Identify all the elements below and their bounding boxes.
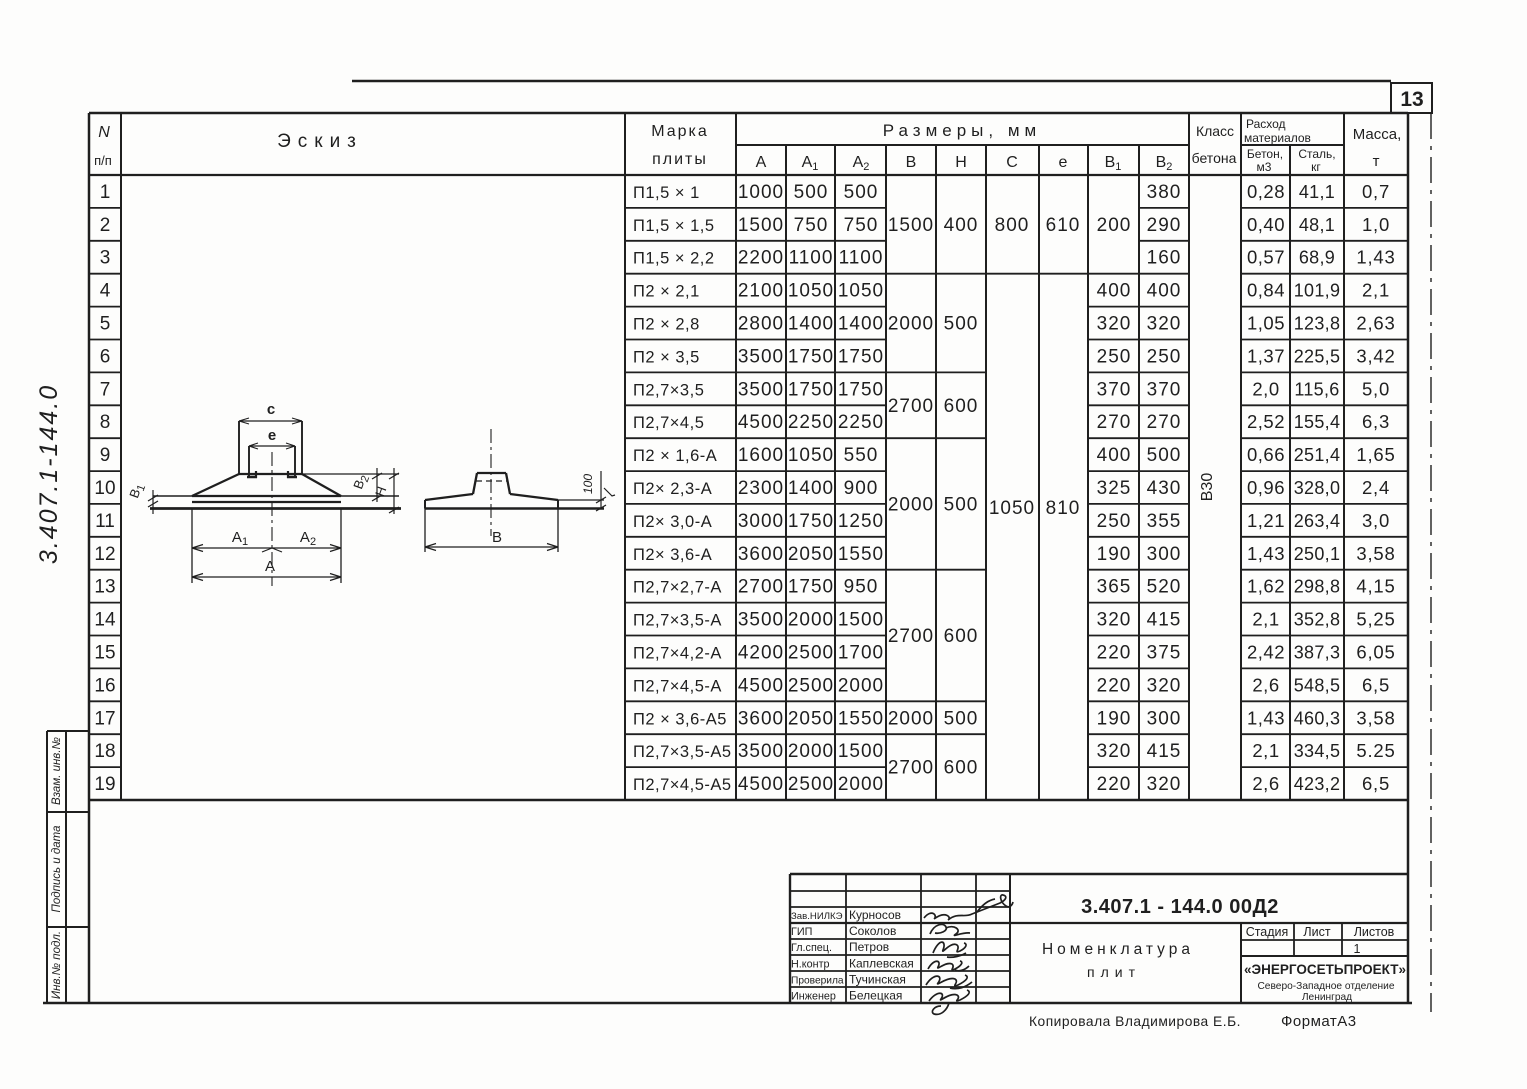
svg-text:П1,5 × 1: П1,5 × 1 [633,184,700,202]
svg-text:3600: 3600 [738,708,784,729]
svg-text:В2: В2 [1156,154,1173,173]
svg-text:Бетон,: Бетон, [1247,147,1283,161]
svg-text:160: 160 [1147,248,1182,269]
svg-text:4200: 4200 [738,643,784,664]
svg-text:Взам. инв.№: Взам. инв.№ [51,736,63,804]
svg-text:400: 400 [944,215,979,236]
svg-text:13: 13 [94,577,115,598]
svg-text:900: 900 [844,478,879,499]
svg-text:2250: 2250 [788,412,834,433]
svg-text:460,3: 460,3 [1294,708,1341,728]
svg-text:П2,7×4,5-А5: П2,7×4,5-А5 [633,776,732,794]
svg-text:520: 520 [1147,577,1182,598]
svg-text:Подпись и дата: Подпись и дата [51,826,63,913]
svg-text:2700: 2700 [888,626,934,647]
svg-text:П2 × 3,5: П2 × 3,5 [633,348,700,366]
svg-text:415: 415 [1147,610,1182,631]
svg-text:4,15: 4,15 [1356,576,1395,597]
svg-text:П2,7×3,5-А5: П2,7×3,5-А5 [633,743,732,761]
svg-text:П2 × 1,6-А: П2 × 1,6-А [633,447,717,465]
svg-text:Масса,: Масса, [1353,126,1402,143]
svg-text:17: 17 [94,708,115,729]
svg-text:плит: плит [1087,964,1141,980]
svg-text:Инв.№ подл.: Инв.№ подл. [51,931,63,999]
svg-text:1,43: 1,43 [1356,247,1395,268]
svg-text:Н: Н [955,154,967,171]
svg-text:2,63: 2,63 [1356,313,1395,334]
svg-text:2500: 2500 [788,643,834,664]
svg-text:0,57: 0,57 [1247,247,1285,268]
svg-text:Белецкая: Белецкая [849,989,902,1003]
svg-text:Курносов: Курносов [849,908,901,922]
svg-text:1,43: 1,43 [1247,543,1285,564]
svg-text:А: А [265,558,275,575]
svg-text:16: 16 [94,675,115,696]
svg-text:100: 100 [581,474,595,494]
svg-text:Ленинград: Ленинград [1302,992,1352,1003]
svg-text:415: 415 [1147,741,1182,762]
svg-text:423,2: 423,2 [1294,774,1341,794]
svg-text:А2: А2 [300,529,316,548]
svg-text:ФорматА3: ФорматА3 [1281,1013,1357,1030]
svg-text:П2 × 2,1: П2 × 2,1 [633,283,700,301]
svg-text:П2 × 2,8: П2 × 2,8 [633,316,700,334]
svg-text:кг: кг [1311,160,1321,174]
svg-text:220: 220 [1097,675,1132,696]
svg-text:600: 600 [944,626,979,647]
svg-text:370: 370 [1097,379,1132,400]
svg-text:380: 380 [1147,182,1182,203]
svg-text:3,42: 3,42 [1356,345,1395,366]
svg-text:2000: 2000 [838,675,884,696]
svg-text:1,05: 1,05 [1247,313,1285,334]
svg-text:320: 320 [1097,314,1132,335]
svg-text:370: 370 [1147,379,1182,400]
svg-text:Расход: Расход [1246,117,1286,131]
svg-text:3500: 3500 [738,346,784,367]
svg-text:352,8: 352,8 [1294,610,1341,630]
svg-text:13: 13 [1400,88,1423,111]
svg-text:300: 300 [1147,708,1182,729]
svg-text:Копировала Владимирова Е.Б.: Копировала Владимирова Е.Б. [1029,1014,1241,1029]
svg-text:3,0: 3,0 [1362,510,1390,531]
svg-text:1050: 1050 [788,445,834,466]
svg-text:325: 325 [1097,478,1132,499]
svg-text:5: 5 [100,314,111,335]
svg-text:19: 19 [94,774,115,795]
svg-text:225,5: 225,5 [1294,346,1341,366]
svg-text:320: 320 [1147,774,1182,795]
svg-text:500: 500 [944,314,979,335]
svg-text:270: 270 [1097,412,1132,433]
svg-text:220: 220 [1097,643,1132,664]
svg-text:1,0: 1,0 [1362,214,1390,235]
svg-text:0,96: 0,96 [1247,477,1285,498]
svg-text:Инженер: Инженер [791,991,836,1003]
svg-text:материалов: материалов [1244,131,1311,145]
svg-text:250: 250 [1147,346,1182,367]
svg-text:2050: 2050 [788,708,834,729]
svg-text:18: 18 [94,741,115,762]
svg-text:Класс: Класс [1196,123,1234,139]
svg-text:250: 250 [1097,346,1132,367]
svg-text:Зав.НИЛКЭ: Зав.НИЛКЭ [791,911,843,922]
svg-text:1: 1 [1354,942,1361,956]
svg-text:6,05: 6,05 [1356,642,1395,663]
svg-text:251,4: 251,4 [1294,445,1341,465]
svg-text:300: 300 [1147,544,1182,565]
svg-text:400: 400 [1097,445,1132,466]
svg-text:4500: 4500 [738,774,784,795]
svg-text:1,43: 1,43 [1247,707,1285,728]
svg-text:3500: 3500 [738,379,784,400]
svg-text:2: 2 [100,215,111,236]
svg-text:3,58: 3,58 [1356,707,1395,728]
svg-text:1700: 1700 [838,643,884,664]
svg-text:500: 500 [844,182,879,203]
svg-text:1050: 1050 [989,498,1035,519]
svg-text:400: 400 [1147,281,1182,302]
svg-text:6: 6 [100,346,111,367]
svg-text:2,42: 2,42 [1247,642,1285,663]
svg-text:1100: 1100 [839,248,884,269]
svg-text:Н.контр: Н.контр [791,958,830,970]
svg-text:А2: А2 [853,154,870,173]
svg-text:П2,7×4,5-А: П2,7×4,5-А [633,677,722,695]
svg-text:2,1: 2,1 [1252,740,1279,761]
svg-text:1750: 1750 [838,346,884,367]
svg-text:263,4: 263,4 [1294,511,1341,531]
svg-text:1500: 1500 [838,610,884,631]
svg-text:250,1: 250,1 [1294,544,1341,564]
svg-text:Петров: Петров [849,940,889,954]
svg-text:0,28: 0,28 [1247,181,1285,202]
svg-text:328,0: 328,0 [1294,478,1341,498]
svg-text:500: 500 [944,708,979,729]
svg-text:3000: 3000 [738,511,784,532]
svg-text:1,62: 1,62 [1247,576,1285,597]
svg-text:2,4: 2,4 [1362,477,1390,498]
svg-text:2,1: 2,1 [1362,280,1390,301]
svg-text:Номенклатура: Номенклатура [1042,941,1194,958]
svg-text:15: 15 [94,643,115,664]
svg-text:48,1: 48,1 [1299,215,1335,235]
svg-text:320: 320 [1147,675,1182,696]
svg-text:155,4: 155,4 [1294,412,1341,432]
svg-text:6,5: 6,5 [1362,674,1390,695]
svg-text:П2,7×4,5: П2,7×4,5 [633,414,704,432]
svg-text:9: 9 [100,445,111,466]
svg-text:500: 500 [944,494,979,515]
svg-text:220: 220 [1097,774,1132,795]
svg-text:500: 500 [1147,445,1182,466]
svg-text:П1,5 × 2,2: П1,5 × 2,2 [633,250,715,268]
svg-text:В1: В1 [126,481,148,501]
svg-text:С: С [1006,154,1018,171]
svg-text:П2,7×3,5-А: П2,7×3,5-А [633,612,722,630]
svg-text:3.407.1-144.0: 3.407.1-144.0 [35,384,63,564]
svg-text:750: 750 [794,215,829,236]
svg-text:7: 7 [100,379,111,400]
svg-text:550: 550 [844,445,879,466]
svg-text:320: 320 [1147,314,1182,335]
svg-text:6,3: 6,3 [1362,411,1390,432]
svg-text:Эскиз: Эскиз [277,131,363,152]
svg-text:м3: м3 [1257,160,1272,174]
svg-text:А1: А1 [802,154,819,173]
svg-text:0,66: 0,66 [1247,444,1285,465]
svg-text:123,8: 123,8 [1294,314,1341,334]
svg-text:190: 190 [1097,544,1132,565]
svg-text:П2,7×2,7-А: П2,7×2,7-А [633,579,722,597]
svg-text:2200: 2200 [738,248,784,269]
svg-text:П2 × 3,6-А5: П2 × 3,6-А5 [633,710,727,728]
svg-text:1600: 1600 [738,445,784,466]
svg-text:П2× 3,0-А: П2× 3,0-А [633,513,712,531]
svg-text:2700: 2700 [738,577,784,598]
svg-text:548,5: 548,5 [1294,675,1341,695]
svg-text:1750: 1750 [838,379,884,400]
svg-text:2000: 2000 [888,494,934,515]
svg-text:П2,7×3,5: П2,7×3,5 [633,381,704,399]
svg-text:1400: 1400 [788,314,834,335]
svg-text:2000: 2000 [788,741,834,762]
svg-text:600: 600 [944,758,979,779]
svg-text:950: 950 [844,577,879,598]
svg-text:Лист: Лист [1303,925,1330,939]
svg-text:2000: 2000 [888,314,934,335]
svg-text:П2× 2,3-А: П2× 2,3-А [633,480,712,498]
svg-text:0,40: 0,40 [1247,214,1285,235]
svg-text:3.407.1 - 144.0 00Д2: 3.407.1 - 144.0 00Д2 [1081,896,1279,918]
svg-text:5,25: 5,25 [1356,609,1395,630]
svg-text:2,1: 2,1 [1252,609,1279,630]
svg-text:1100: 1100 [789,248,834,269]
svg-text:2500: 2500 [788,774,834,795]
svg-text:2100: 2100 [738,281,784,302]
svg-text:3,58: 3,58 [1356,543,1395,564]
svg-text:5.25: 5.25 [1356,740,1395,761]
svg-text:т: т [1373,153,1380,170]
svg-text:2250: 2250 [838,412,884,433]
svg-text:3500: 3500 [738,610,784,631]
svg-text:320: 320 [1097,741,1132,762]
svg-text:1750: 1750 [788,577,834,598]
svg-text:Листов: Листов [1354,925,1395,939]
svg-text:В: В [492,529,502,546]
svg-text:8: 8 [100,412,111,433]
svg-text:270: 270 [1147,412,1182,433]
svg-text:2,6: 2,6 [1252,773,1279,794]
svg-text:бетона: бетона [1192,150,1237,166]
svg-text:4500: 4500 [738,675,784,696]
svg-text:200: 200 [1097,215,1132,236]
svg-text:250: 250 [1097,511,1132,532]
svg-text:115,6: 115,6 [1294,379,1339,399]
svg-text:500: 500 [794,182,829,203]
svg-text:11: 11 [95,511,115,532]
svg-text:3500: 3500 [738,741,784,762]
svg-text:1500: 1500 [888,215,934,236]
svg-text:1,65: 1,65 [1356,444,1395,465]
svg-text:п/п: п/п [94,153,112,168]
svg-text:2700: 2700 [888,758,934,779]
svg-text:290: 290 [1147,215,1182,236]
svg-text:298,8: 298,8 [1294,577,1341,597]
svg-text:П2,7×4,2-А: П2,7×4,2-А [633,645,722,663]
svg-text:1250: 1250 [838,511,884,532]
svg-text:4: 4 [100,281,111,302]
svg-text:плиты: плиты [652,151,708,168]
svg-text:750: 750 [844,215,879,236]
svg-text:365: 365 [1097,577,1132,598]
svg-text:N: N [98,124,110,141]
svg-text:А: А [756,154,767,171]
svg-text:1750: 1750 [788,511,834,532]
svg-text:В: В [906,154,917,171]
svg-text:В1: В1 [1105,154,1122,173]
svg-text:ГИП: ГИП [791,926,812,938]
svg-text:с: с [267,401,275,418]
svg-text:1400: 1400 [838,314,884,335]
svg-text:1000: 1000 [738,182,784,203]
svg-text:355: 355 [1147,511,1182,532]
svg-text:1,37: 1,37 [1247,345,1285,366]
svg-text:101,9: 101,9 [1294,281,1341,301]
svg-text:5,0: 5,0 [1362,378,1390,399]
svg-text:3: 3 [100,248,111,269]
svg-text:6,5: 6,5 [1362,773,1390,794]
svg-text:190: 190 [1097,708,1132,729]
svg-text:1750: 1750 [788,346,834,367]
svg-text:3600: 3600 [738,544,784,565]
svg-text:Каплевская: Каплевская [849,956,914,970]
svg-text:0,84: 0,84 [1247,280,1285,301]
svg-text:800: 800 [995,215,1030,236]
svg-text:12: 12 [94,544,115,565]
svg-text:2700: 2700 [888,396,934,417]
svg-text:334,5: 334,5 [1294,741,1341,761]
svg-text:2800: 2800 [738,314,784,335]
svg-text:430: 430 [1147,478,1182,499]
svg-text:2000: 2000 [838,774,884,795]
svg-text:Проверила: Проверила [791,975,844,986]
svg-text:2000: 2000 [888,708,934,729]
svg-text:2050: 2050 [788,544,834,565]
svg-text:1,21: 1,21 [1247,510,1285,531]
svg-text:2000: 2000 [788,610,834,631]
svg-text:2,6: 2,6 [1252,674,1279,695]
svg-text:Сталь,: Сталь, [1298,147,1335,161]
svg-text:В30: В30 [1199,473,1216,502]
svg-text:1400: 1400 [788,478,834,499]
svg-text:1750: 1750 [788,379,834,400]
svg-text:2300: 2300 [738,478,784,499]
svg-text:320: 320 [1097,610,1132,631]
svg-text:1500: 1500 [738,215,784,236]
svg-text:1550: 1550 [838,544,884,565]
svg-text:10: 10 [94,478,115,499]
svg-text:600: 600 [944,396,979,417]
svg-text:Размеры, мм: Размеры, мм [883,121,1041,140]
svg-text:387,3: 387,3 [1294,643,1341,663]
svg-text:375: 375 [1147,643,1182,664]
svg-text:2,0: 2,0 [1252,378,1279,399]
svg-text:610: 610 [1046,215,1081,236]
svg-text:П2× 3,6-А: П2× 3,6-А [633,546,712,564]
svg-text:е: е [268,427,276,444]
svg-text:В2: В2 [350,472,372,492]
svg-text:Соколов: Соколов [849,924,896,938]
svg-text:1050: 1050 [788,281,834,302]
svg-text:2,52: 2,52 [1247,411,1285,432]
svg-text:Марка: Марка [651,123,709,140]
svg-text:810: 810 [1046,498,1081,519]
svg-text:2500: 2500 [788,675,834,696]
svg-text:А1: А1 [232,529,248,548]
svg-text:0,7: 0,7 [1362,181,1390,202]
svg-text:е: е [1059,154,1068,171]
svg-text:Тучинская: Тучинская [849,972,906,986]
svg-text:Стадия: Стадия [1246,925,1289,939]
svg-text:П1,5 × 1,5: П1,5 × 1,5 [633,217,715,235]
svg-text:Северо-Западное отделение: Северо-Западное отделение [1257,981,1394,992]
svg-text:Гл.спец.: Гл.спец. [791,942,832,954]
svg-text:68,9: 68,9 [1299,248,1335,268]
svg-text:1050: 1050 [838,281,884,302]
svg-text:400: 400 [1097,281,1132,302]
svg-text:14: 14 [94,610,116,631]
svg-text:1500: 1500 [838,741,884,762]
svg-text:1550: 1550 [838,708,884,729]
svg-text:4500: 4500 [738,412,784,433]
svg-text:1: 1 [100,182,111,203]
svg-text:41,1: 41,1 [1299,182,1335,202]
svg-text:«ЭНЕРГОСЕТЬПРОЕКТ»: «ЭНЕРГОСЕТЬПРОЕКТ» [1244,962,1406,977]
